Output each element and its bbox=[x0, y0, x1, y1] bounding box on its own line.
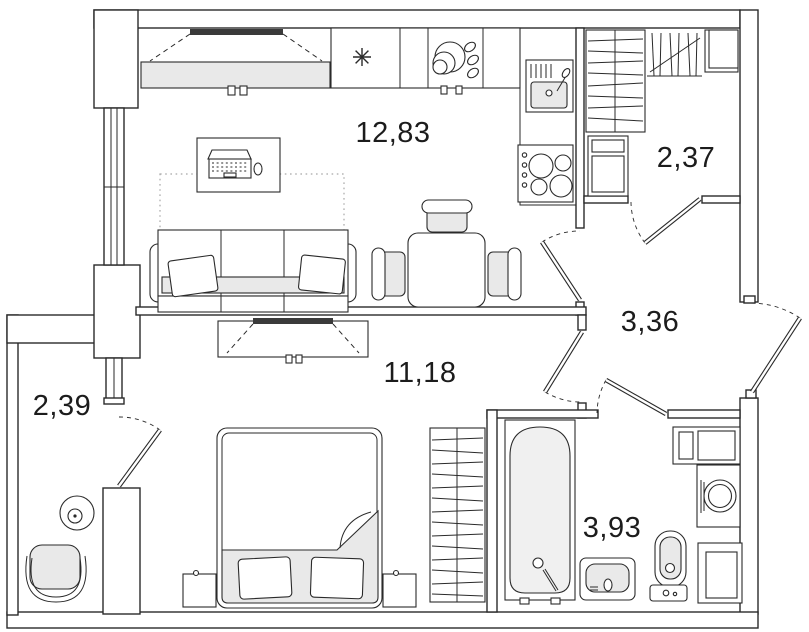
tv-stand-living bbox=[141, 29, 330, 95]
living-room-window bbox=[104, 108, 124, 265]
closet-door bbox=[631, 199, 700, 243]
balcony-chair bbox=[26, 545, 86, 602]
nightstand-right bbox=[383, 571, 416, 608]
stove bbox=[518, 145, 573, 202]
desk-with-laptop bbox=[197, 138, 280, 192]
room-label-balcony: 2,39 bbox=[33, 390, 91, 422]
room-label-closet: 2,37 bbox=[657, 142, 715, 174]
dresser bbox=[588, 136, 628, 196]
toilet bbox=[650, 531, 687, 601]
balcony-door bbox=[119, 417, 160, 486]
bathroom-shelf bbox=[673, 427, 740, 464]
washbasin bbox=[580, 558, 635, 600]
entrance-door bbox=[744, 296, 800, 398]
closet-box bbox=[705, 30, 738, 72]
room-label-hallway: 3,36 bbox=[621, 306, 679, 338]
room-label-bedroom: 11,18 bbox=[384, 357, 457, 389]
sofa bbox=[150, 230, 356, 312]
bathroom-door bbox=[597, 380, 666, 414]
living-room-door bbox=[542, 231, 580, 300]
room-label-bathroom: 3,93 bbox=[583, 512, 641, 544]
bathtub bbox=[505, 420, 575, 604]
bedroom-door bbox=[545, 332, 582, 402]
refrigerator-snowflake-icon bbox=[353, 48, 371, 66]
washing-machine bbox=[697, 465, 740, 527]
closet-shelves bbox=[586, 30, 645, 132]
balcony-window bbox=[104, 358, 124, 404]
bed bbox=[217, 428, 382, 608]
bathroom-cabinet bbox=[698, 543, 742, 603]
room-label-living-kitchen: 12,83 bbox=[355, 117, 430, 149]
balcony-table bbox=[60, 496, 94, 530]
wardrobe-bedroom bbox=[430, 428, 485, 602]
dining-table bbox=[408, 233, 485, 307]
floor-plan: 12,83 2,37 3,36 11,18 2,39 3,93 bbox=[0, 0, 809, 632]
closet-rail bbox=[647, 33, 702, 76]
tv-stand-bedroom bbox=[218, 318, 368, 363]
floor-plan-page: 12,83 2,37 3,36 11,18 2,39 3,93 bbox=[0, 0, 809, 632]
nightstand-left bbox=[183, 571, 216, 608]
kitchen-sink bbox=[526, 60, 573, 112]
